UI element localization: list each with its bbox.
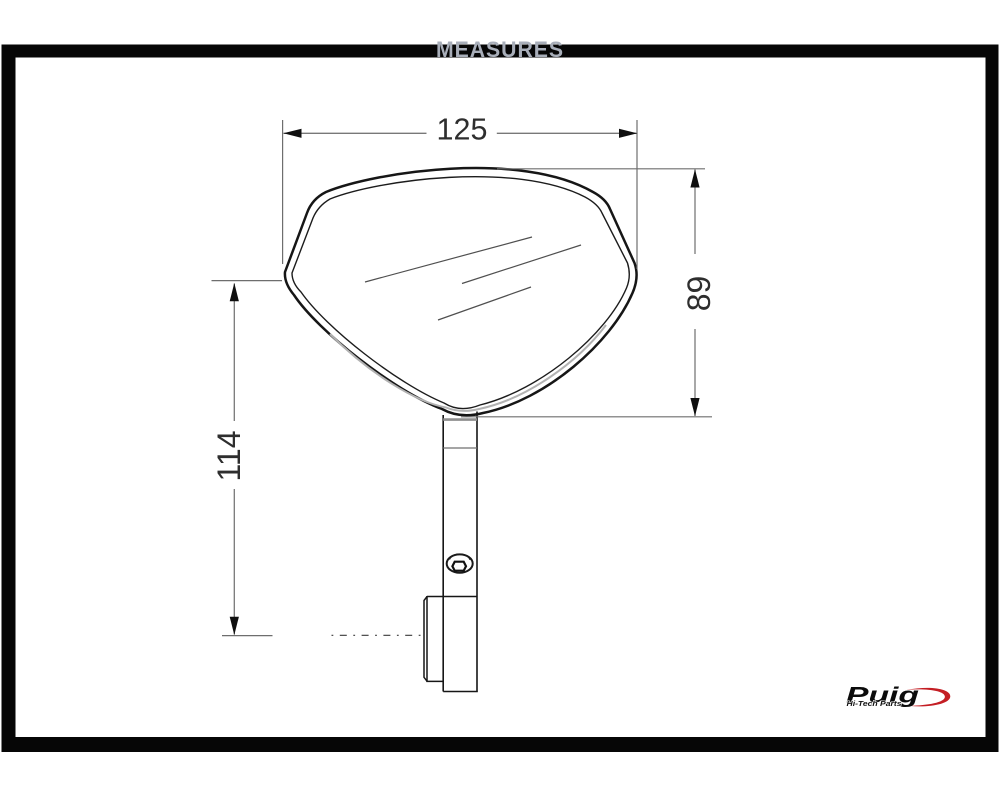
svg-text:Hi-Tech Parts: Hi-Tech Parts <box>847 701 902 708</box>
svg-text:MEASURES: MEASURES <box>436 37 564 62</box>
svg-text:125: 125 <box>437 113 488 147</box>
svg-text:114: 114 <box>211 430 247 481</box>
svg-text:89: 89 <box>681 276 717 312</box>
